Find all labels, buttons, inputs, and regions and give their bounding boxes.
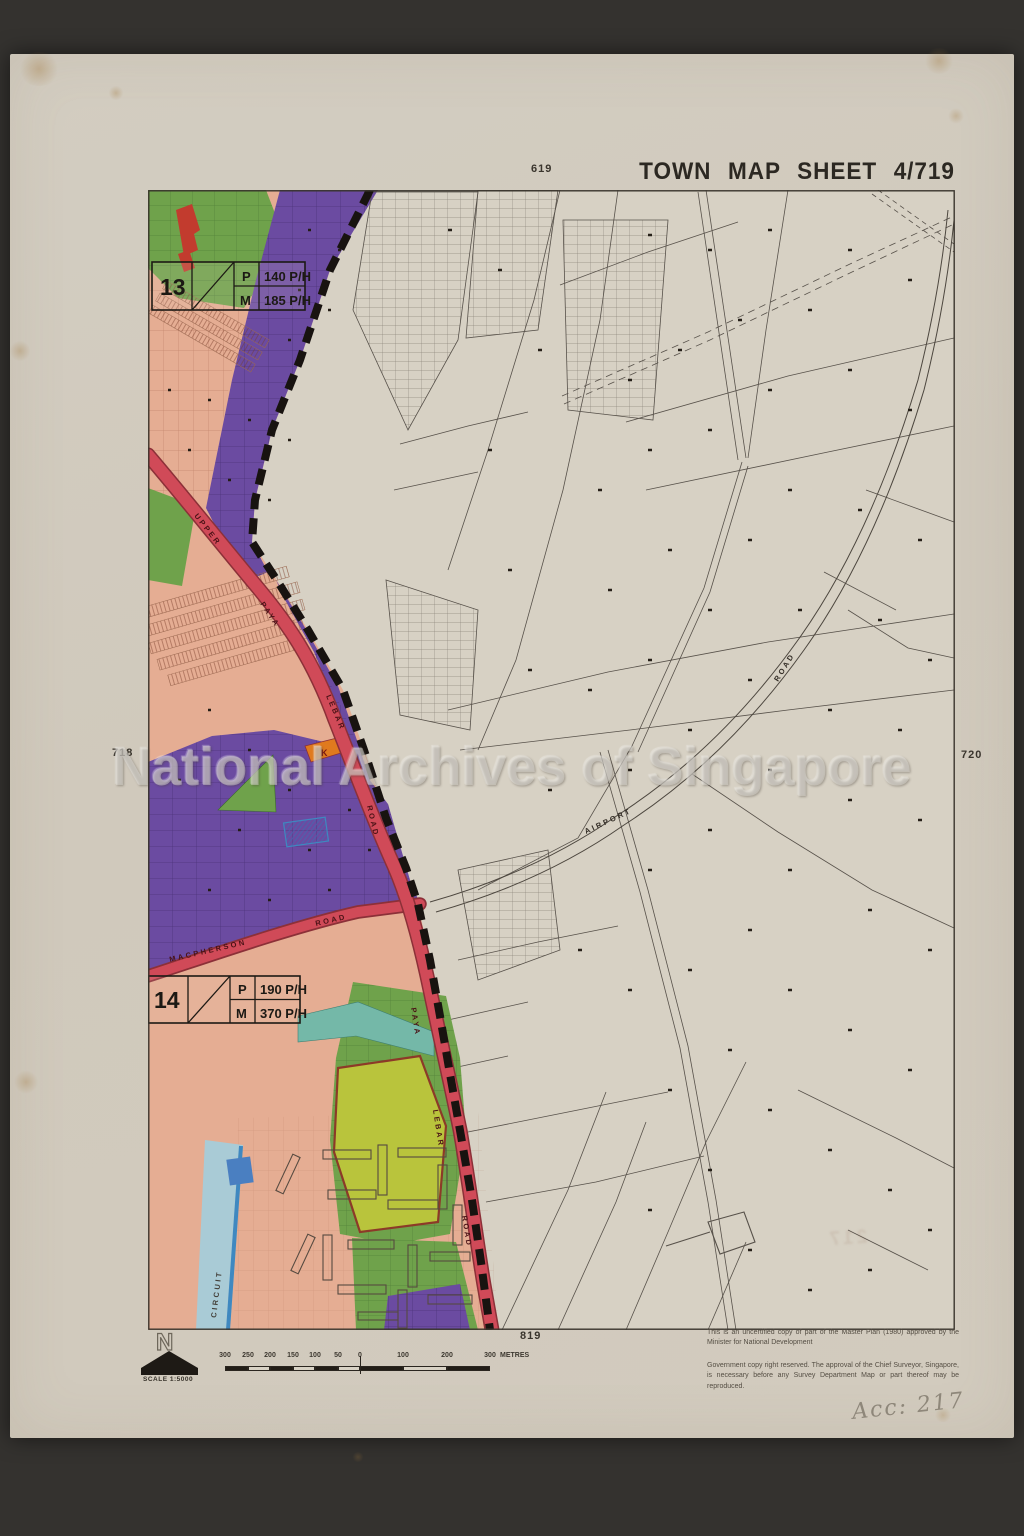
scale-tick: 250 xyxy=(242,1352,254,1359)
north-letter: N xyxy=(156,1329,173,1356)
legend-13-val-m: 185 P/H xyxy=(264,293,311,308)
scale-text: SCALE 1:5000 xyxy=(143,1376,193,1383)
legend-14-id: 14 xyxy=(154,987,180,1013)
note-copyright: Government copy right reserved. The appr… xyxy=(707,1361,959,1391)
zone-lime xyxy=(334,1056,446,1232)
legend-block-13: 13 P 140 P/H M 185 P/H xyxy=(152,262,311,310)
parcel-blue-hatched xyxy=(284,817,329,847)
scale-tick: 150 xyxy=(287,1352,299,1359)
legend-13-val-p: 140 P/H xyxy=(264,269,311,284)
scale-tick: 50 xyxy=(334,1352,342,1359)
grid-ref-left: 718 xyxy=(112,747,133,759)
parcel-blue xyxy=(226,1156,253,1185)
scale-zero-tick xyxy=(360,1356,361,1374)
scale-segment xyxy=(248,1366,270,1371)
scale-segment xyxy=(447,1366,490,1371)
scale-segment xyxy=(315,1366,338,1371)
scale-segment xyxy=(270,1366,293,1371)
scale-segment xyxy=(293,1366,315,1371)
scale-segment xyxy=(225,1366,248,1371)
grid-ref-top: 619 xyxy=(531,163,552,175)
legend-block-14: 14 P 190 P/H M 370 P/H xyxy=(148,976,307,1023)
north-arrow: N xyxy=(138,1326,202,1378)
legend-13-key-m: M xyxy=(240,293,251,308)
scale-tick: 100 xyxy=(397,1352,409,1359)
parcel-k-label: K xyxy=(321,748,328,758)
legend-13-id: 13 xyxy=(160,274,186,300)
stain xyxy=(352,1452,364,1462)
scale-unit: METRES xyxy=(500,1352,529,1359)
scale-segment xyxy=(403,1366,447,1371)
legend-14-key-p: P xyxy=(238,982,247,997)
scale-tick: 200 xyxy=(441,1352,453,1359)
scale-tick: 300 xyxy=(484,1352,496,1359)
grid-ref-right: 720 xyxy=(961,749,982,761)
grid-ref-bottom: 819 xyxy=(520,1330,541,1342)
scale-tick: 200 xyxy=(264,1352,276,1359)
scanned-map-page: TOWN MAP SHEET 4/719 619 718 720 819 xyxy=(0,0,1024,1536)
north-arrow-shape xyxy=(141,1351,198,1375)
note-uncertified: This is an uncertified copy of part of t… xyxy=(707,1328,959,1348)
legend-14-val-p: 190 P/H xyxy=(260,982,307,997)
scale-segment xyxy=(360,1366,403,1371)
legend-14-val-m: 370 P/H xyxy=(260,1006,307,1021)
legend-14-key-m: M xyxy=(236,1006,247,1021)
town-map: K xyxy=(148,190,955,1330)
map-sheet-title: TOWN MAP SHEET 4/719 xyxy=(639,158,955,186)
scale-segment xyxy=(338,1366,360,1371)
scale-tick: 100 xyxy=(309,1352,321,1359)
legend-13-key-p: P xyxy=(242,269,251,284)
scale-tick: 300 xyxy=(219,1352,231,1359)
